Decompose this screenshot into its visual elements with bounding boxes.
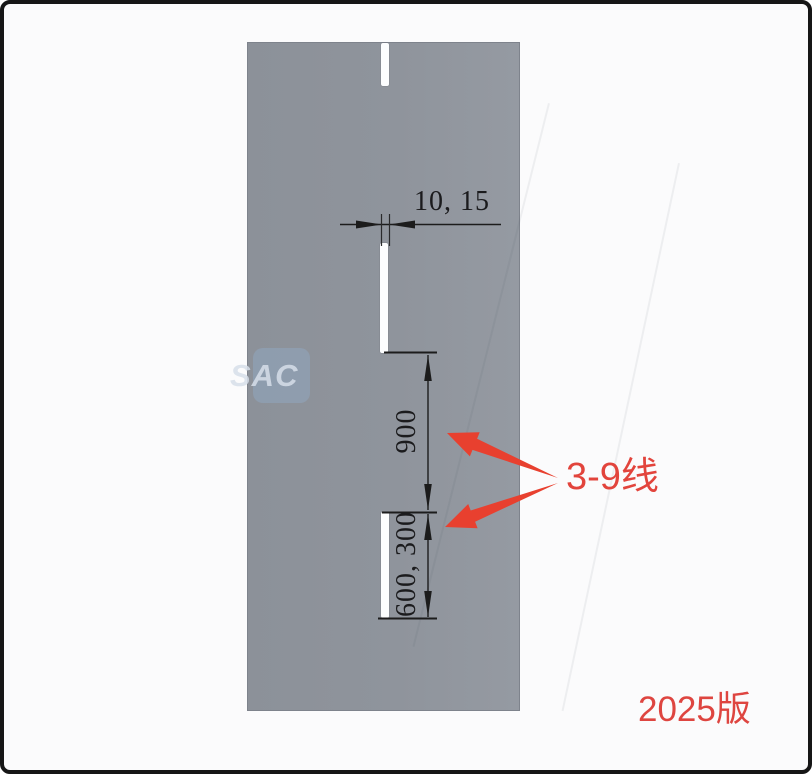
- version-label: 2025版: [638, 692, 751, 727]
- segment-length-label: 900: [393, 409, 421, 454]
- dimension-arrow-icon: [424, 514, 432, 540]
- dimension-arrow-icon: [424, 484, 432, 510]
- callout-arrow-lower-icon: [445, 483, 558, 528]
- dash-length-label: 600, 300: [393, 511, 421, 617]
- callout-label: 3-9线: [566, 458, 659, 496]
- gap-dimension-lines: [340, 214, 501, 246]
- dimension-arrow-icon: [389, 221, 415, 229]
- dimension-arrow-icon: [424, 591, 432, 617]
- dimension-arrow-icon: [424, 355, 432, 381]
- callout-arrow-upper-icon: [447, 432, 558, 478]
- gap-dimension-label: 10, 15: [414, 188, 490, 216]
- lane-marking-figure: SAC 10, 15: [0, 0, 812, 774]
- dimension-linework: [0, 0, 812, 774]
- dimension-arrow-icon: [356, 221, 382, 229]
- callout-arrows: [445, 432, 558, 528]
